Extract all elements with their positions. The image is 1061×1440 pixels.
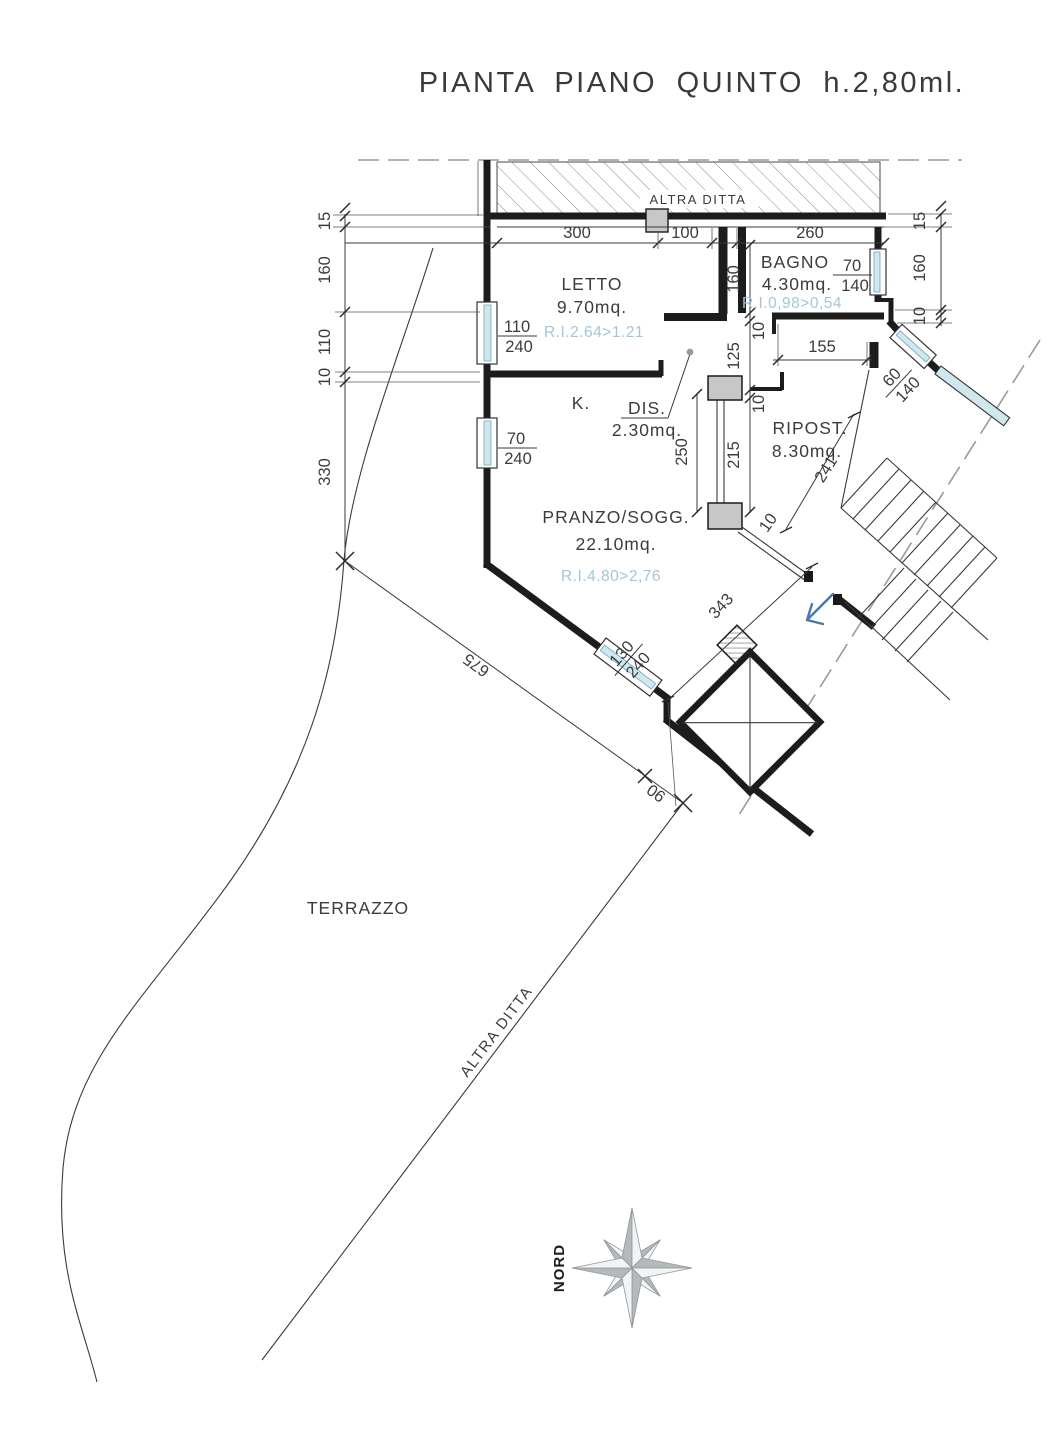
window-letto [477, 302, 497, 364]
room-ripost-name: RIPOST. [772, 418, 847, 438]
dim-window-bagno: 70 140 [833, 257, 872, 295]
glazed-strip [935, 366, 1010, 426]
room-kitchen-label: K. [572, 393, 591, 413]
svg-text:140: 140 [841, 277, 869, 295]
dim-right-15: 15 [911, 212, 929, 230]
dim-260: 260 [796, 224, 824, 242]
dim-mid-10b: 10 [750, 395, 768, 413]
room-bagno-name: BAGNO [761, 252, 829, 272]
dim-mid-215: 215 [725, 441, 743, 469]
floorplan-sheet: PIANTA PIANO QUINTO h.2,80ml. ALTRA DITT… [0, 0, 1061, 1440]
room-dis-area: 2.30mq. [612, 420, 682, 440]
window-pranzo [477, 418, 497, 468]
adjacent-property-label-diagonal: ALTRA DITTA [457, 983, 536, 1081]
room-dis-name: DIS. [628, 398, 666, 418]
stair-steps [841, 458, 997, 662]
adjacent-property-label-top: ALTRA DITTA [650, 192, 747, 207]
room-labels: LETTO 9.70mq. R.I.2.64>1.21 BAGNO 4.30mq… [307, 252, 848, 918]
dim-window-letto: 110 240 [498, 318, 537, 356]
leader-dot [687, 349, 694, 356]
room-terrazzo-label: TERRAZZO [307, 898, 409, 918]
dim-left-10: 10 [316, 368, 334, 386]
room-pranzo-area: 22.10mq. [576, 534, 657, 554]
dim-250: 250 [673, 438, 691, 466]
svg-text:240: 240 [505, 338, 533, 356]
svg-text:110: 110 [504, 318, 530, 336]
dim-mid-160: 160 [725, 265, 743, 293]
svg-text:70: 70 [843, 257, 861, 275]
dim-100: 100 [671, 224, 699, 242]
page-title: PIANTA PIANO QUINTO h.2,80ml. [419, 67, 965, 99]
dim-300: 300 [563, 224, 591, 242]
svg-text:70: 70 [507, 430, 525, 448]
entrance-arrow-icon [807, 594, 833, 624]
pillar-upper [708, 376, 742, 400]
dim-mid-125: 125 [725, 342, 743, 370]
room-bagno-ri: R.I.0,98>0,54 [742, 295, 842, 312]
svg-text:240: 240 [504, 450, 532, 468]
window-bagno [870, 249, 886, 295]
stairs [841, 370, 997, 700]
dim-343: 343 [705, 590, 737, 622]
room-letto-name: LETTO [561, 274, 622, 294]
window-stairwell [890, 324, 936, 368]
dim-window-pranzo: 70 240 [498, 430, 537, 468]
dim-right-160: 160 [911, 254, 929, 282]
dim-left-110: 110 [316, 329, 334, 355]
adjacent-property-block: ALTRA DITTA [489, 162, 886, 232]
compass-rose-icon: NORD [551, 1208, 692, 1328]
room-letto-area: 9.70mq. [557, 297, 627, 317]
dim-window-stairwell: 60 140 [873, 358, 927, 412]
room-ripost-area: 8.30mq. [772, 441, 842, 461]
room-pranzo-ri: R.I.4.80>2,76 [561, 568, 661, 585]
dim-left-160: 160 [316, 256, 334, 284]
dim-675: 675 [460, 649, 493, 680]
room-letto-ri: R.I.2.64>1.21 [544, 324, 644, 341]
dim-155: 155 [808, 338, 836, 356]
elevator-shaft [680, 625, 820, 792]
floorplan-drawing: PIANTA PIANO QUINTO h.2,80ml. ALTRA DITT… [0, 0, 1061, 1440]
dim-mid-10a: 10 [750, 322, 768, 340]
north-label: NORD [551, 1244, 568, 1292]
room-pranzo-name: PRANZO/SOGG. [542, 507, 689, 527]
dim-right-10: 10 [911, 307, 929, 325]
dim-left-15: 15 [316, 212, 334, 230]
room-bagno-area: 4.30mq. [762, 274, 832, 294]
terrace-boundary: ALTRA DITTA [62, 248, 683, 1382]
structural-pillar [646, 209, 668, 232]
dim-10-pillar: 10 [756, 510, 781, 535]
dim-left-330: 330 [316, 458, 334, 486]
dim-90: 90 [644, 780, 669, 805]
pillar-lower [708, 503, 742, 529]
